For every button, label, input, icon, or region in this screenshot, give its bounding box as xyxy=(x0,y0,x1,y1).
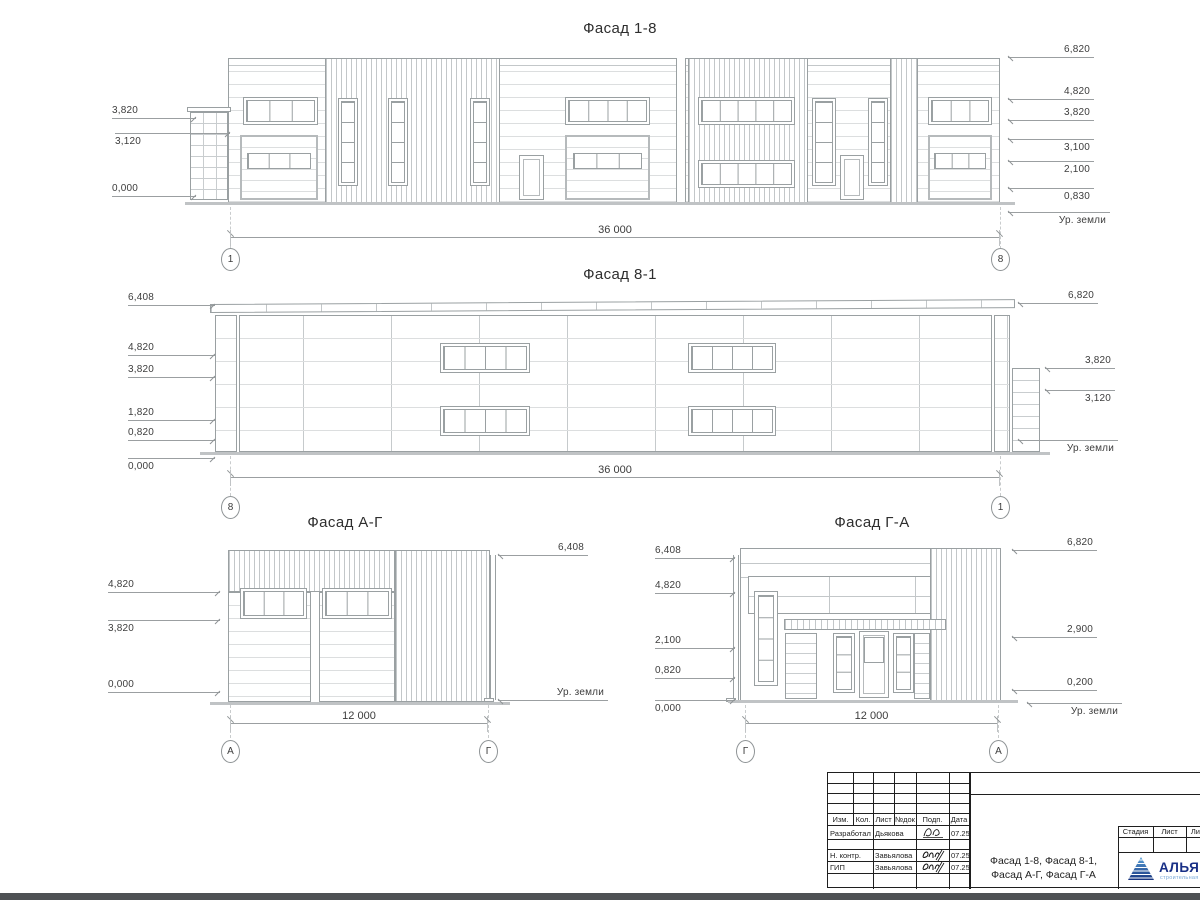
elevation-mark: 6,408 xyxy=(128,305,215,306)
ground-level-mark: Ур. земли xyxy=(1027,703,1122,704)
elevation-mark: 6,820 xyxy=(1008,57,1094,58)
downpipe xyxy=(490,555,496,700)
tb-date: 07.25 xyxy=(951,863,970,872)
tb-stage: Стадия xyxy=(1118,826,1153,837)
elevation-mark: 3,820 xyxy=(112,118,196,119)
elevation-mark: 6,820 xyxy=(1012,550,1097,551)
elevation-mark: 0,820 xyxy=(128,440,215,441)
dimension-line: 36 000 xyxy=(230,237,1000,238)
doc-title: Фасад 1-8, Фасад 8-1, Фасад А-Г, Фасад Г… xyxy=(969,853,1118,883)
elevation-mark: 2,100 xyxy=(655,648,735,649)
tb-col-kol: Кол. xyxy=(853,813,873,825)
window-band xyxy=(440,343,530,373)
axis-bubble: Г xyxy=(479,740,498,763)
facade-1-8-drawing xyxy=(185,55,1015,215)
page-bottom-edge xyxy=(0,893,1200,900)
alliance-logo-triangle-icon xyxy=(1128,857,1154,880)
slat-cladding xyxy=(395,550,490,702)
elevation-mark: 1,820 xyxy=(128,420,215,421)
dimension-line: 12 000 xyxy=(745,723,998,724)
tb-sheet: Лист xyxy=(1153,826,1186,837)
garage-door xyxy=(565,135,650,200)
axis-bubble: 8 xyxy=(991,248,1010,271)
door-glass xyxy=(864,637,884,663)
window-band xyxy=(440,406,530,436)
axis-bubble: 1 xyxy=(991,496,1010,519)
parapet xyxy=(210,299,1015,313)
slat-band xyxy=(228,550,395,592)
elevation-mark: 6,408 xyxy=(498,555,588,556)
window-band xyxy=(322,588,392,619)
window-band xyxy=(688,343,776,373)
tall-window xyxy=(754,591,778,686)
window-band xyxy=(928,97,992,125)
window-band xyxy=(698,160,795,188)
tb-name: Завьялова xyxy=(875,851,912,860)
window-band xyxy=(698,97,795,125)
elevation-mark: 3,820 xyxy=(1045,368,1115,369)
signature-scribble xyxy=(920,826,947,839)
dimension-line: 12 000 xyxy=(230,723,488,724)
tall-window xyxy=(868,98,888,186)
elevation-mark: 6,408 xyxy=(655,558,735,559)
elevation-mark: 2,100 xyxy=(1008,161,1094,162)
slat-cladding xyxy=(890,58,918,203)
tb-date: 07.25 xyxy=(951,851,970,860)
stone-pilaster xyxy=(914,633,930,699)
facade-g-a-drawing xyxy=(640,540,1120,712)
elevation-mark: 6,820 xyxy=(1018,303,1098,304)
tall-window xyxy=(338,98,358,186)
tall-window xyxy=(812,98,836,186)
pilaster xyxy=(310,592,320,702)
tb-name: Завьялова xyxy=(875,863,912,872)
elevation-mark: 2,900 xyxy=(1012,637,1097,638)
facade-1-8-title: Фасад 1-8 xyxy=(535,20,705,37)
ground-line xyxy=(185,202,1015,205)
tb-col-data: Дата xyxy=(949,813,969,825)
axis-bubble: 8 xyxy=(221,496,240,519)
tb-name: Дьякова xyxy=(875,829,904,838)
elevation-mark: 0,000 xyxy=(655,700,735,701)
window-band xyxy=(565,97,650,125)
elevation-mark: 3,820 xyxy=(108,620,220,621)
downpipe xyxy=(236,315,240,452)
axis-leader xyxy=(1000,207,1001,249)
drawing-sheet: Фасад 1-8 3,820 3,120 0,000 6,820 4,820 … xyxy=(0,0,1200,900)
elevation-mark: 4,820 xyxy=(128,355,215,356)
annex-structure xyxy=(190,112,228,200)
elevation-mark: 4,820 xyxy=(1008,99,1094,100)
facade-g-a-wall xyxy=(740,548,1000,702)
facade-8-1-title: Фасад 8-1 xyxy=(535,266,705,283)
garage-door xyxy=(240,135,318,200)
entrance-canopy xyxy=(784,619,946,630)
window-band xyxy=(688,406,776,436)
tb-role: ГИП xyxy=(830,863,845,872)
elevation-mark: 3,820 xyxy=(128,377,215,378)
signature-scribble xyxy=(920,861,947,873)
title-block: Изм. Кол. Лист №док Подп. Дата Разработа… xyxy=(827,772,1200,888)
ground-level-mark: Ур. земли xyxy=(498,700,608,701)
axis-bubble: 1 xyxy=(221,248,240,271)
tb-role: Н. контр. xyxy=(830,851,861,860)
tb-col-izm: Изм. xyxy=(828,813,853,825)
side-door xyxy=(519,155,544,200)
stone-pilaster xyxy=(785,633,817,699)
elevation-mark: 0,000 xyxy=(108,692,220,693)
elevation-mark: 0,820 xyxy=(655,678,735,679)
elevation-mark: 0,200 xyxy=(1012,690,1097,691)
facade-8-1-drawing xyxy=(200,290,1050,465)
tb-col-ndok: №док xyxy=(894,813,916,825)
pilaster xyxy=(676,58,686,203)
entrance-window xyxy=(893,633,914,693)
elevation-mark: 3,120 xyxy=(115,133,230,134)
elevation-mark: 4,820 xyxy=(108,592,220,593)
downpipe xyxy=(991,315,995,452)
entrance-door xyxy=(859,631,889,698)
signature-scribble xyxy=(920,849,947,861)
alliance-logo-text: АЛЬЯНС xyxy=(1159,860,1200,875)
entrance-window xyxy=(833,633,855,693)
window-band xyxy=(240,588,307,619)
facade-a-g-title: Фасад А-Г xyxy=(260,514,430,531)
elevation-mark: 0,000 xyxy=(128,458,215,459)
tb-role: Разработал xyxy=(830,829,871,838)
axis-bubble: Г xyxy=(736,740,755,763)
elevation-mark: 4,820 xyxy=(655,593,735,594)
alliance-logo-tagline: строительная компания xyxy=(1160,875,1200,881)
garage-door xyxy=(928,135,992,200)
facade-g-a-title: Фасад Г-А xyxy=(787,514,957,531)
facade-8-1-wall xyxy=(215,315,1010,452)
ground-line xyxy=(200,452,1050,455)
dimension-line: 36 000 xyxy=(230,477,1000,478)
window-band xyxy=(243,97,318,125)
ground-line xyxy=(728,700,1018,703)
tb-col-podp: Подп. xyxy=(916,813,949,825)
tb-col-list: Лист xyxy=(873,813,894,825)
axis-bubble: А xyxy=(221,740,240,763)
ground-level-mark: Ур. земли xyxy=(1018,440,1118,441)
elevation-mark: 0,000 xyxy=(112,196,196,197)
elevation-mark: 3,820 xyxy=(1008,120,1094,121)
tb-sheets: Листов xyxy=(1186,826,1200,837)
ground-level-mark: Ур. земли xyxy=(1008,212,1110,213)
elevation-mark: 3,100 xyxy=(1008,139,1094,140)
tall-window xyxy=(470,98,490,186)
ground-line xyxy=(210,702,510,705)
elevation-mark: 0,830 xyxy=(1008,188,1094,189)
elevation-mark: 3,120 xyxy=(1045,390,1115,391)
side-door xyxy=(840,155,864,200)
tall-window xyxy=(388,98,408,186)
tb-date: 07.25 xyxy=(951,829,970,838)
axis-bubble: А xyxy=(989,740,1008,763)
